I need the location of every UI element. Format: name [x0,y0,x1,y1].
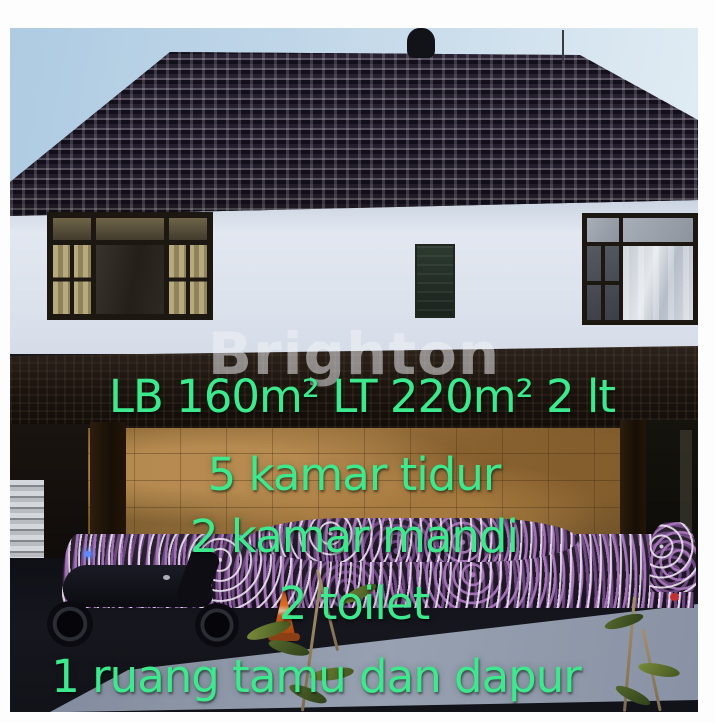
house-photo: Brighton LB 160m² LT 220m² 2 lt 5 kamar … [10,28,698,712]
overlay-line-bedrooms: 5 kamar tidur [10,447,698,503]
roof-antenna [562,30,564,60]
roof-ridge-ornament [407,28,435,58]
window-pane [623,246,693,320]
window-pane [587,218,619,242]
left-window [47,212,213,320]
small-center-window [415,244,455,318]
window-pane [96,218,164,240]
window-pane [169,218,207,240]
window-pane [96,245,164,314]
right-window-panes [587,218,693,320]
overlay-line-bathrooms: 2 kamar mandi [10,509,698,565]
overlay-line-building-land-area: LB 160m² LT 220m² 2 lt [18,369,698,425]
overlay-line-livingroom-kitchen: 1 ruang tamu dan dapur [10,649,660,705]
window-pane-curtain [169,245,207,314]
window-pane [623,218,693,242]
right-window [582,213,698,325]
overlay-line-toilets: 2 toilet [10,576,698,632]
window-pane [587,246,619,320]
window-pane-curtain [53,245,91,314]
window-pane [53,218,91,240]
left-window-panes [53,218,207,314]
listing-image-frame: Brighton LB 160m² LT 220m² 2 lt 5 kamar … [0,0,715,723]
